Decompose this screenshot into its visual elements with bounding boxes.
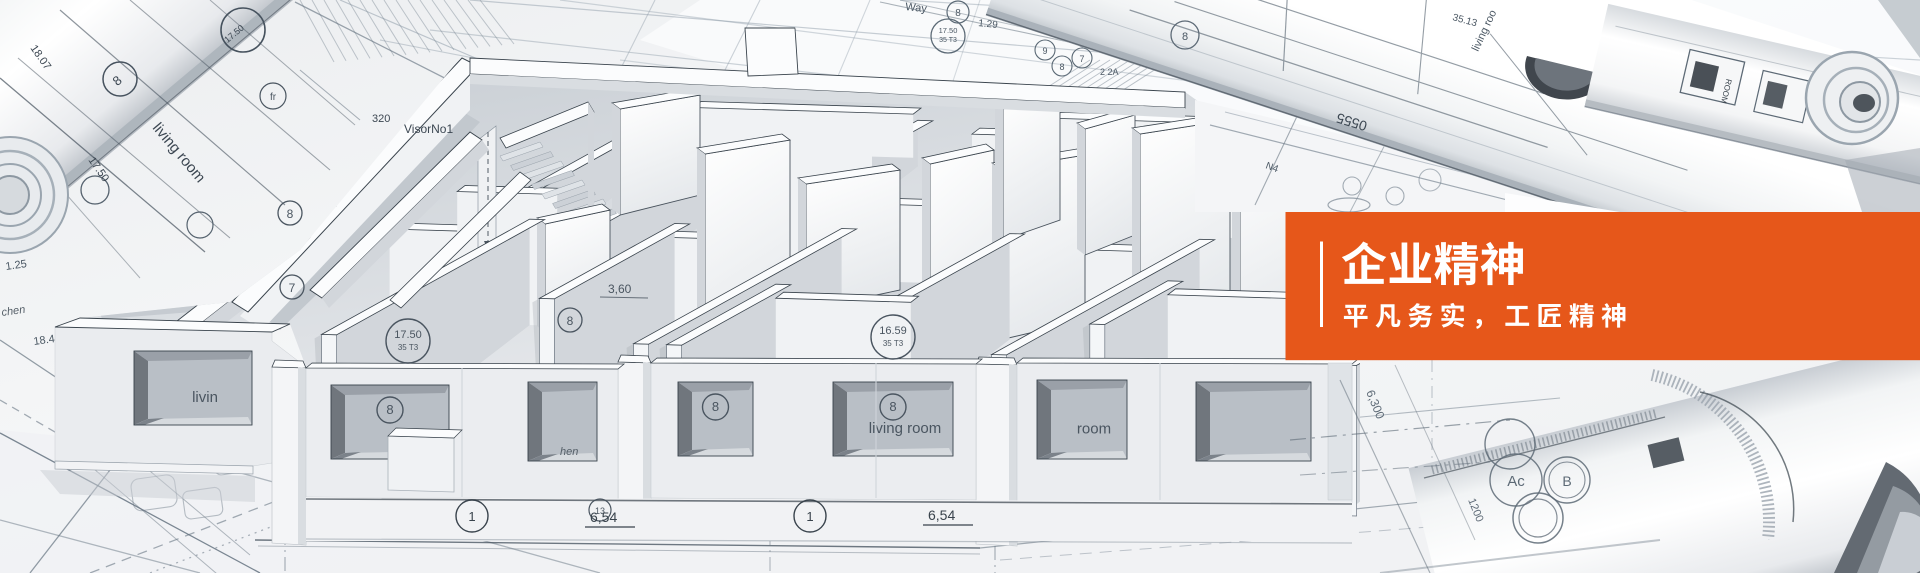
- svg-text:room: room: [1077, 421, 1111, 438]
- svg-text:8: 8: [386, 402, 393, 417]
- svg-text:7: 7: [289, 281, 296, 295]
- svg-text:livin: livin: [192, 389, 218, 406]
- svg-text:1: 1: [468, 509, 475, 524]
- svg-text:8: 8: [567, 314, 574, 328]
- svg-text:living room: living room: [869, 420, 942, 437]
- svg-text:9: 9: [1042, 46, 1047, 56]
- svg-text:320: 320: [372, 113, 390, 125]
- svg-text:8: 8: [889, 399, 896, 414]
- svg-text:8: 8: [1059, 62, 1064, 72]
- svg-text:35 T3: 35 T3: [398, 343, 419, 352]
- svg-text:3,60: 3,60: [608, 282, 632, 296]
- svg-text:17.50: 17.50: [394, 329, 422, 341]
- svg-text:6,54: 6,54: [590, 509, 617, 525]
- svg-text:Ac: Ac: [1507, 473, 1525, 490]
- svg-text:B: B: [1562, 473, 1571, 489]
- svg-text:1: 1: [806, 509, 813, 524]
- svg-text:VisorNo1: VisorNo1: [404, 122, 453, 136]
- svg-text:7: 7: [1079, 54, 1084, 64]
- svg-text:fr: fr: [270, 92, 277, 103]
- svg-text:35 T3: 35 T3: [939, 37, 957, 44]
- svg-text:16.59: 16.59: [879, 325, 907, 337]
- svg-text:hen: hen: [560, 446, 578, 458]
- svg-text:6,54: 6,54: [928, 507, 955, 523]
- svg-text:8: 8: [1182, 31, 1188, 43]
- svg-text:35 T3: 35 T3: [883, 339, 904, 348]
- svg-text:8: 8: [712, 399, 719, 414]
- svg-text:17.50: 17.50: [939, 26, 958, 35]
- svg-text:8: 8: [287, 207, 294, 221]
